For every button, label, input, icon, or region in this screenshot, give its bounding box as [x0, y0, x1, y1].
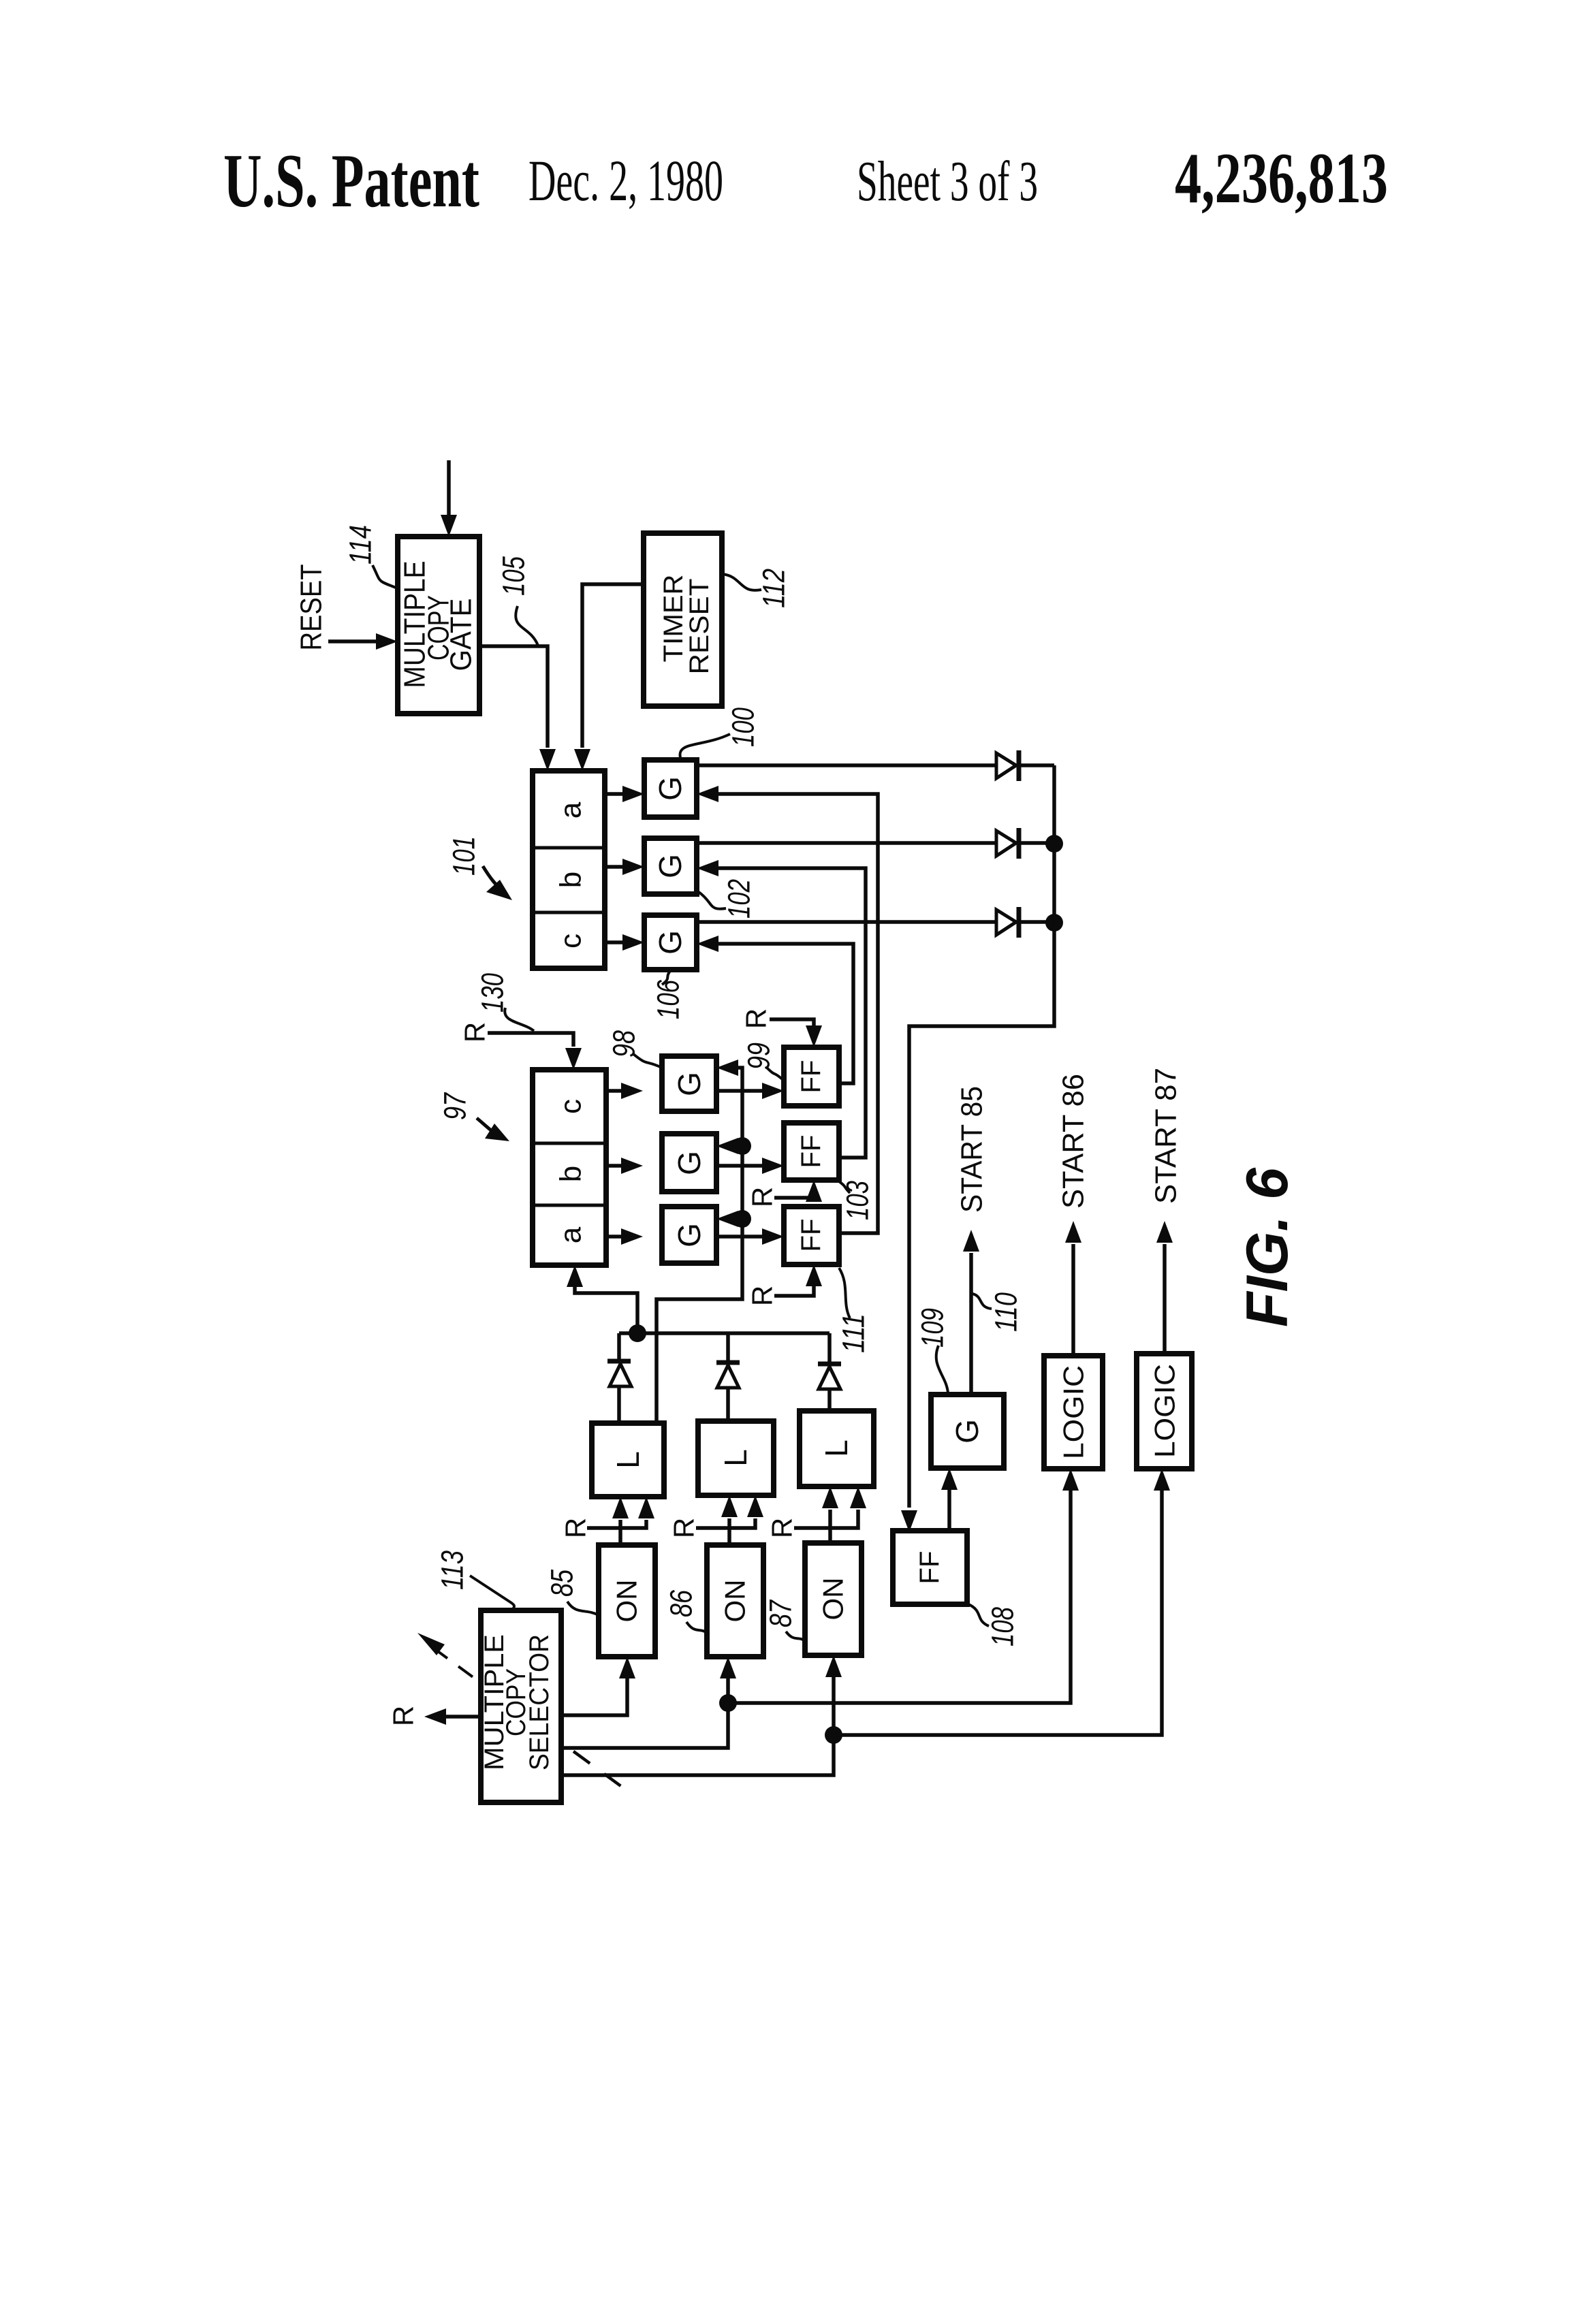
svg-text:G: G [671, 1223, 707, 1247]
svg-text:GATE: GATE [445, 599, 478, 671]
svg-text:SELECTOR: SELECTOR [524, 1634, 554, 1770]
svg-text:111: 111 [836, 1314, 871, 1353]
svg-text:LOGIC: LOGIC [1058, 1365, 1090, 1459]
svg-text:99: 99 [742, 1042, 776, 1070]
svg-text:LOGIC: LOGIC [1149, 1364, 1181, 1458]
svg-text:4,236,813: 4,236,813 [1175, 138, 1388, 218]
svg-text:105: 105 [496, 556, 531, 596]
svg-text:113: 113 [435, 1550, 470, 1590]
svg-text:R: R [746, 1187, 778, 1207]
svg-text:START 85: START 85 [955, 1086, 989, 1213]
svg-text:98: 98 [607, 1030, 642, 1057]
svg-text:R: R [766, 1518, 798, 1538]
svg-text:RESET: RESET [295, 564, 328, 651]
svg-text:R: R [560, 1518, 592, 1538]
svg-text:FF: FF [915, 1551, 945, 1585]
svg-text:a: a [554, 801, 588, 818]
svg-text:ON: ON [611, 1580, 643, 1623]
svg-text:FF: FF [796, 1219, 826, 1252]
svg-text:RESET: RESET [684, 579, 714, 675]
svg-text:108: 108 [985, 1607, 1020, 1646]
svg-text:100: 100 [726, 707, 761, 747]
svg-text:FF: FF [796, 1135, 826, 1168]
svg-text:G: G [949, 1419, 985, 1444]
svg-text:114: 114 [343, 525, 378, 564]
svg-text:Dec. 2, 1980: Dec. 2, 1980 [528, 148, 723, 213]
svg-text:R: R [388, 1706, 420, 1726]
svg-text:112: 112 [757, 569, 791, 608]
svg-text:G: G [671, 1151, 707, 1175]
svg-text:b: b [554, 872, 588, 888]
svg-text:c: c [554, 1099, 588, 1114]
svg-text:130: 130 [475, 973, 510, 1013]
svg-text:87: 87 [763, 1599, 798, 1627]
svg-text:106: 106 [651, 979, 686, 1019]
svg-text:START 86: START 86 [1057, 1074, 1090, 1209]
svg-text:86: 86 [664, 1589, 699, 1617]
svg-text:U.S. Patent: U.S. Patent [223, 139, 479, 223]
svg-text:FIG. 6: FIG. 6 [1235, 1167, 1300, 1327]
svg-text:85: 85 [545, 1569, 580, 1597]
svg-text:R: R [668, 1518, 700, 1538]
svg-text:R: R [746, 1286, 778, 1306]
svg-text:c: c [554, 934, 588, 949]
svg-text:109: 109 [915, 1308, 950, 1348]
svg-text:L: L [718, 1449, 753, 1467]
svg-text:L: L [610, 1451, 646, 1469]
svg-text:102: 102 [722, 879, 757, 919]
svg-text:97: 97 [438, 1092, 473, 1120]
svg-text:G: G [652, 776, 688, 801]
svg-text:G: G [652, 854, 688, 878]
svg-text:START 87: START 87 [1150, 1068, 1183, 1204]
svg-text:G: G [671, 1072, 707, 1096]
svg-text:b: b [554, 1166, 588, 1182]
svg-text:ON: ON [719, 1580, 751, 1623]
svg-text:R: R [740, 1008, 772, 1029]
svg-text:FF: FF [796, 1060, 826, 1094]
svg-text:R: R [459, 1022, 491, 1042]
svg-text:a: a [554, 1226, 588, 1243]
svg-text:ON: ON [817, 1578, 849, 1621]
svg-text:Sheet 3 of 3: Sheet 3 of 3 [857, 150, 1038, 213]
svg-text:101: 101 [447, 836, 481, 876]
svg-text:G: G [652, 930, 688, 955]
svg-text:L: L [819, 1439, 854, 1457]
svg-text:110: 110 [989, 1292, 1024, 1332]
